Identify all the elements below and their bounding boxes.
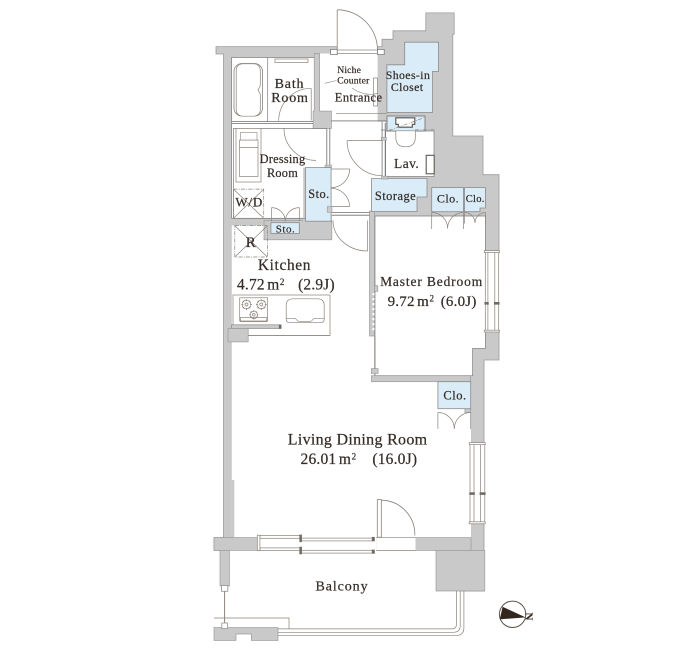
svg-text:Balcony: Balcony — [316, 580, 369, 595]
svg-text:Bath: Bath — [275, 77, 305, 92]
svg-text:Kitchen: Kitchen — [258, 257, 311, 274]
svg-text:W/D: W/D — [235, 195, 263, 210]
svg-text:Storage: Storage — [375, 189, 416, 203]
svg-text:Sto.: Sto. — [276, 224, 295, 236]
svg-text:Entrance: Entrance — [335, 90, 383, 104]
svg-text:Clo.: Clo. — [443, 388, 466, 402]
svg-text:Closet: Closet — [391, 80, 424, 94]
svg-text:Clo.: Clo. — [437, 192, 459, 206]
svg-text:Living Dining Room: Living Dining Room — [288, 432, 428, 449]
svg-text:Niche: Niche — [337, 65, 361, 76]
svg-text:Counter: Counter — [337, 76, 370, 87]
svg-text:N: N — [523, 613, 535, 621]
svg-text:Master Bedroom: Master Bedroom — [380, 274, 483, 289]
svg-text:Room: Room — [271, 91, 308, 106]
svg-text:Clo.: Clo. — [466, 194, 485, 205]
svg-text:Room: Room — [267, 166, 298, 180]
svg-text:Dressing: Dressing — [260, 152, 306, 166]
svg-text:R: R — [246, 235, 256, 251]
svg-text:Lav.: Lav. — [394, 156, 419, 171]
svg-text:Sto.: Sto. — [308, 187, 329, 201]
